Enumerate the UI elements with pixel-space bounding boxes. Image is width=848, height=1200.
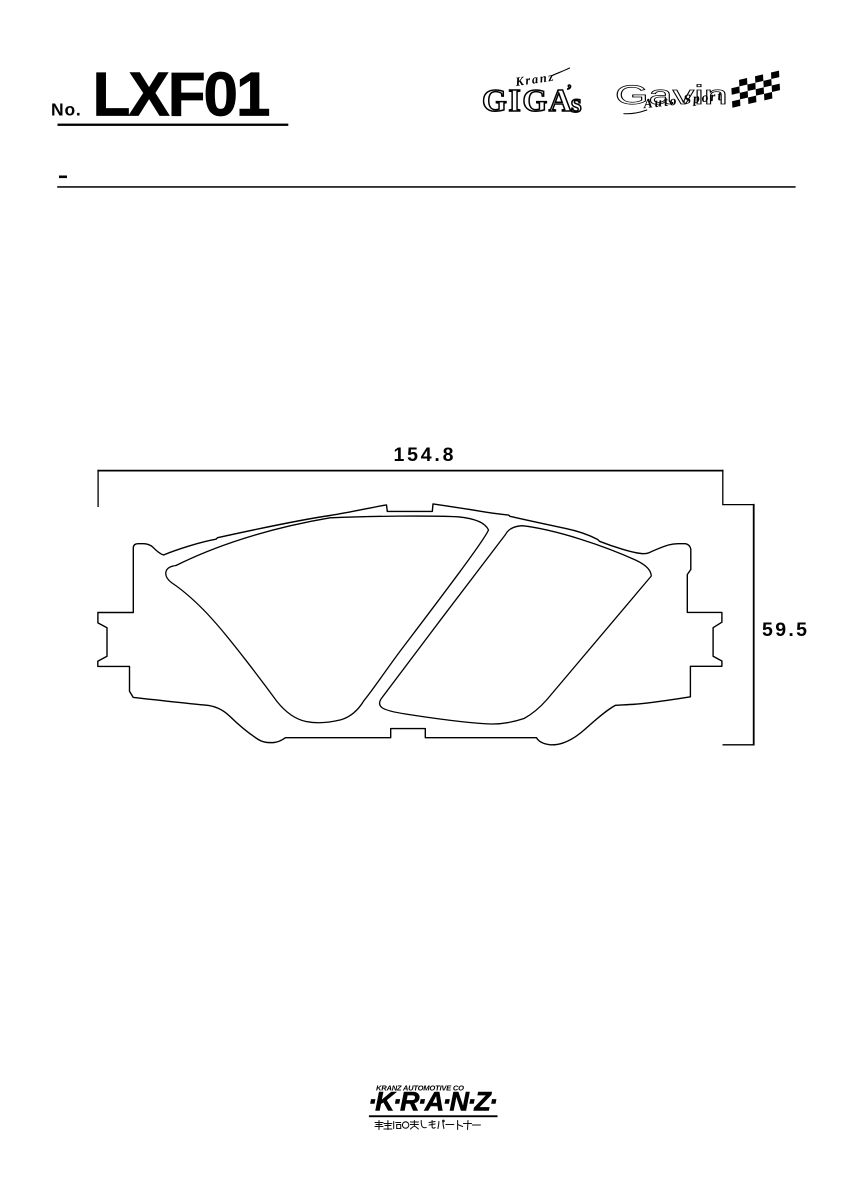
svg-text:59.5: 59.5 xyxy=(762,619,807,641)
svg-text:154.8: 154.8 xyxy=(394,444,454,466)
svg-text:LXF01: LXF01 xyxy=(93,61,271,130)
svg-text:GIGA: GIGA xyxy=(482,82,573,118)
svg-text:s: s xyxy=(571,88,582,118)
svg-text:No.: No. xyxy=(51,100,82,120)
svg-text:·K·R·A·N·Z·: ·K·R·A·N·Z· xyxy=(368,1087,498,1117)
